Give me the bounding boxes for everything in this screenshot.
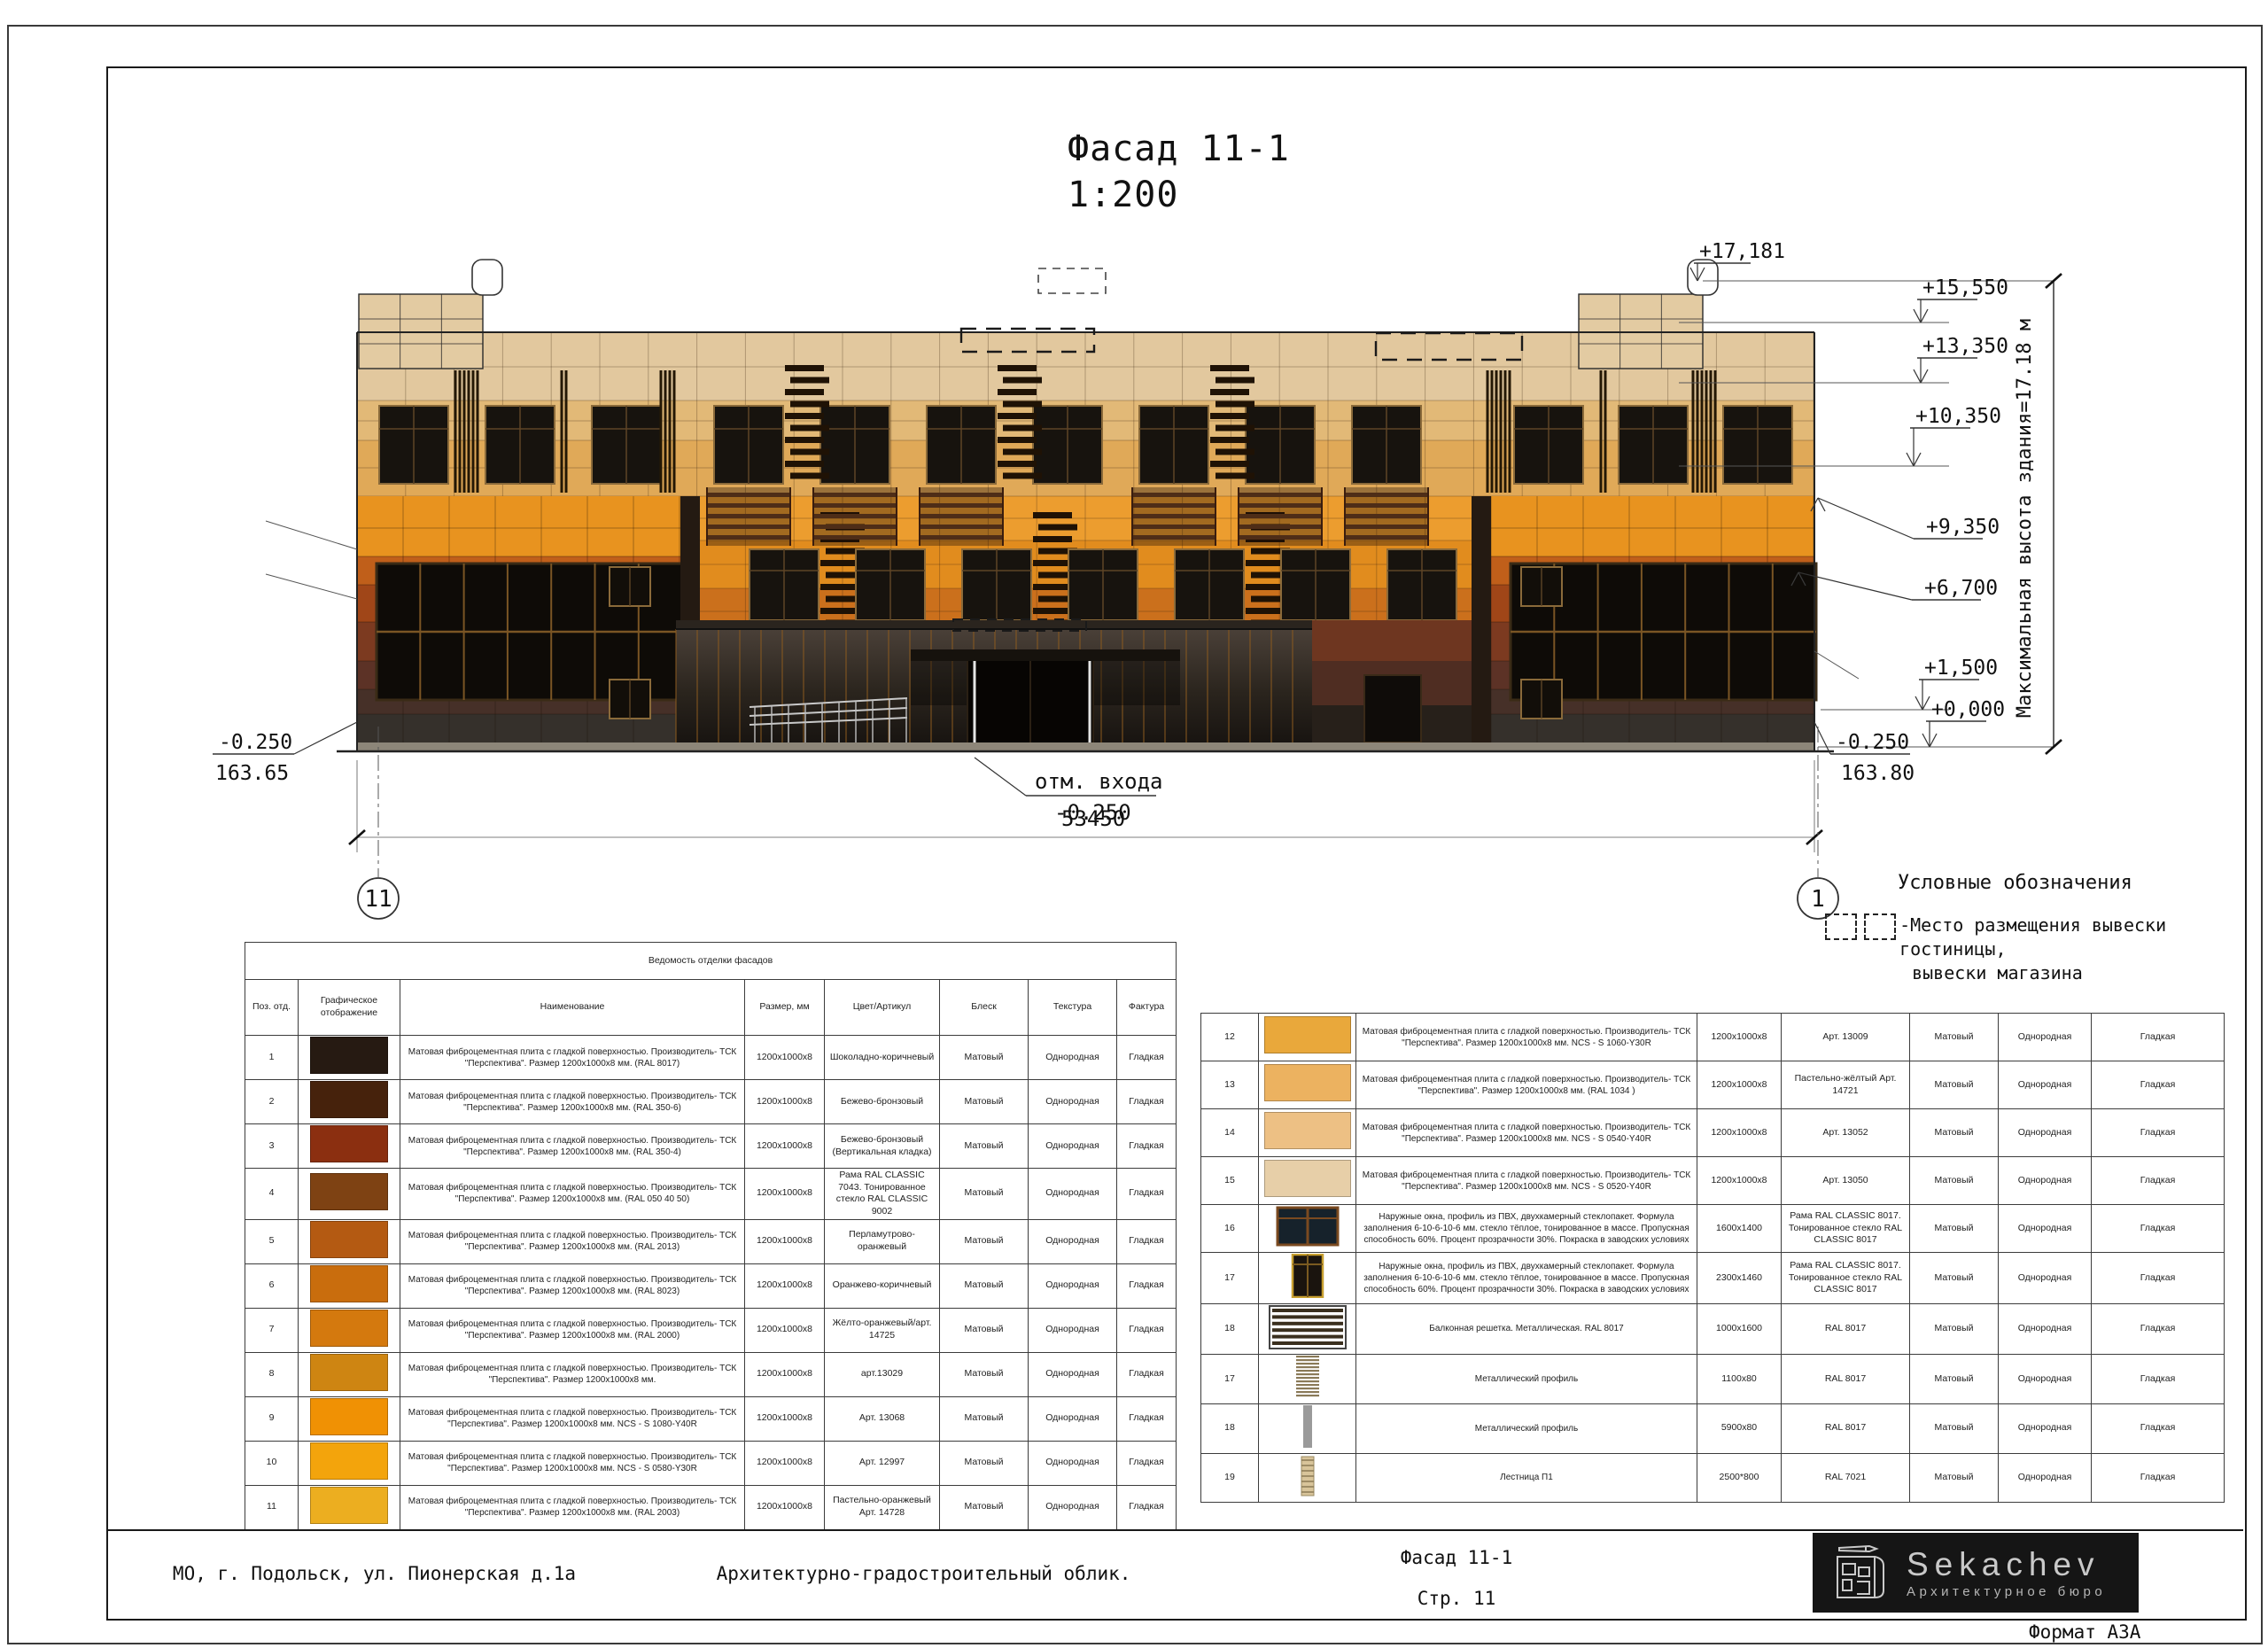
row-texture: Однородная xyxy=(1029,1441,1117,1485)
dim-label: -0.250 xyxy=(219,731,292,754)
column-header: Текстура xyxy=(1029,980,1117,1036)
row-size: 1200х1000х8 xyxy=(745,1308,825,1352)
material-swatch xyxy=(1264,1016,1351,1053)
row-texture: Однородная xyxy=(1029,1308,1117,1352)
table-row: 10Матовая фиброцементная плита с гладкой… xyxy=(245,1441,1177,1485)
row-pos: 6 xyxy=(245,1263,299,1308)
row-texture: Однородная xyxy=(1029,1263,1117,1308)
row-name: Матовая фиброцементная плита с гладкой п… xyxy=(400,1352,745,1396)
row-color: RAL 8017 xyxy=(1782,1355,1910,1404)
row-gloss: Матовый xyxy=(1910,1303,1999,1355)
grille-swatch xyxy=(1269,1305,1347,1349)
table-row: 18Балконная решетка. Металлическая. RAL … xyxy=(1201,1303,2225,1355)
row-name: Матовая фиброцементная плита с гладкой п… xyxy=(400,1080,745,1124)
row-texture: Однородная xyxy=(1999,1061,2092,1109)
table-row: 11Матовая фиброцементная плита с гладкой… xyxy=(245,1485,1177,1529)
row-color: Жёлто-оранжевый/арт. 14725 xyxy=(825,1308,940,1352)
row-swatch-cell xyxy=(1259,1014,1356,1061)
row-size: 1200х1000х8 xyxy=(745,1485,825,1529)
row-color: Рама RAL CLASSIC 7043. Тонированное стек… xyxy=(825,1169,940,1220)
row-surface: Гладкая xyxy=(1117,1352,1177,1396)
finish-schedule-left: Ведомость отделки фасадовПоз. отд.Графич… xyxy=(245,942,1177,1530)
title-block-sheet-name: Фасад 11-1 xyxy=(1205,1547,1708,1568)
dim-label: +17,181 xyxy=(1699,240,1785,263)
row-color: арт.13029 xyxy=(825,1352,940,1396)
row-swatch-cell xyxy=(299,1441,400,1485)
row-name: Матовая фиброцементная плита с гладкой п… xyxy=(1356,1014,1697,1061)
row-pos: 15 xyxy=(1201,1157,1259,1205)
row-surface: Гладкая xyxy=(1117,1396,1177,1441)
row-name: Металлический профиль xyxy=(1356,1403,1697,1453)
row-gloss: Матовый xyxy=(940,1485,1029,1529)
material-swatch xyxy=(310,1442,388,1480)
row-pos: 19 xyxy=(1201,1453,1259,1503)
row-surface: Гладкая xyxy=(1117,1124,1177,1169)
row-pos: 16 xyxy=(1201,1205,1259,1253)
format-label: Формат А3А xyxy=(2029,1621,2140,1643)
row-surface: Гладкая xyxy=(2092,1253,2225,1304)
row-gloss: Матовый xyxy=(940,1124,1029,1169)
row-size: 5900х80 xyxy=(1697,1403,1782,1453)
row-swatch-cell xyxy=(299,1080,400,1124)
row-swatch-cell xyxy=(1259,1205,1356,1253)
row-color: Рама RAL CLASSIC 8017. Тонированное стек… xyxy=(1782,1205,1910,1253)
title-block-stage: Архитектурно-градостроительный облик. xyxy=(642,1563,1205,1584)
row-name: Матовая фиброцементная плита с гладкой п… xyxy=(400,1219,745,1263)
column-header: Фактура xyxy=(1117,980,1177,1036)
row-pos: 4 xyxy=(245,1169,299,1220)
row-surface: Гладкая xyxy=(2092,1303,2225,1355)
row-name: Лестница П1 xyxy=(1356,1453,1697,1503)
row-texture: Однородная xyxy=(1029,1036,1117,1080)
column-header: Цвет/Артикул xyxy=(825,980,940,1036)
row-name: Наружные окна, профиль из ПВХ, двухкамер… xyxy=(1356,1253,1697,1304)
row-swatch-cell xyxy=(299,1352,400,1396)
row-name: Матовая фиброцементная плита с гладкой п… xyxy=(1356,1109,1697,1157)
material-swatch xyxy=(310,1221,388,1258)
row-color: RAL 8017 xyxy=(1782,1303,1910,1355)
table-row: 18Металлический профиль5900х80RAL 8017Ма… xyxy=(1201,1403,2225,1453)
table-row: 17Металлический профиль1100х80RAL 8017Ма… xyxy=(1201,1355,2225,1404)
material-swatch xyxy=(310,1310,388,1347)
row-color: Оранжево-коричневый xyxy=(825,1263,940,1308)
legend: Условные обозначения -Место размещения в… xyxy=(1825,872,2241,985)
finish-schedule-right: 12Матовая фиброцементная плита с гладкой… xyxy=(1200,1013,2225,1503)
row-texture: Однородная xyxy=(1999,1453,2092,1503)
title-block-address: МО, г. Подольск, ул. Пионерская д.1а xyxy=(106,1563,642,1584)
row-surface: Гладкая xyxy=(1117,1036,1177,1080)
dim-label: 1 xyxy=(1811,886,1825,913)
dim-label: 11 xyxy=(364,886,392,913)
row-size: 1200х1000х8 xyxy=(745,1352,825,1396)
row-gloss: Матовый xyxy=(1910,1157,1999,1205)
row-color: RAL 8017 xyxy=(1782,1403,1910,1453)
row-size: 1200х1000х8 xyxy=(745,1263,825,1308)
dim-label: +13,350 xyxy=(1922,335,2008,358)
row-texture: Однородная xyxy=(1999,1157,2092,1205)
row-pos: 2 xyxy=(245,1080,299,1124)
row-size: 1200х1000х8 xyxy=(745,1441,825,1485)
column-header: Поз. отд. xyxy=(245,980,299,1036)
row-pos: 3 xyxy=(245,1124,299,1169)
material-swatch xyxy=(1264,1064,1351,1101)
row-gloss: Матовый xyxy=(940,1308,1029,1352)
dim-label: +6,700 xyxy=(1924,577,1998,600)
row-surface: Гладкая xyxy=(1117,1263,1177,1308)
row-size: 1200х1000х8 xyxy=(745,1219,825,1263)
row-pos: 11 xyxy=(245,1485,299,1529)
table-row: 8Матовая фиброцементная плита с гладкой … xyxy=(245,1352,1177,1396)
logo-brand: Sekachev xyxy=(1907,1547,2106,1582)
material-swatch xyxy=(310,1037,388,1074)
row-gloss: Матовый xyxy=(940,1219,1029,1263)
row-surface: Гладкая xyxy=(1117,1080,1177,1124)
row-swatch-cell xyxy=(1259,1403,1356,1453)
material-swatch xyxy=(310,1354,388,1391)
row-texture: Однородная xyxy=(1999,1205,2092,1253)
row-texture: Однородная xyxy=(1999,1403,2092,1453)
title-block-page: Стр. 11 xyxy=(1205,1588,1708,1609)
row-color: Арт. 13052 xyxy=(1782,1109,1910,1157)
row-color: Перламутрово-оранжевый xyxy=(825,1219,940,1263)
row-pos: 17 xyxy=(1201,1355,1259,1404)
row-surface: Гладкая xyxy=(2092,1403,2225,1453)
row-texture: Однородная xyxy=(1999,1303,2092,1355)
row-swatch-cell xyxy=(1259,1061,1356,1109)
row-texture: Однородная xyxy=(1029,1219,1117,1263)
row-name: Матовая фиброцементная плита с гладкой п… xyxy=(400,1308,745,1352)
row-color: Арт. 13068 xyxy=(825,1396,940,1441)
row-surface: Гладкая xyxy=(2092,1205,2225,1253)
row-name: Наружные окна, профиль из ПВХ, двухкамер… xyxy=(1356,1205,1697,1253)
legend-title: Условные обозначения xyxy=(1898,872,2241,894)
row-gloss: Матовый xyxy=(940,1036,1029,1080)
row-name: Матовая фиброцементная плита с гладкой п… xyxy=(400,1124,745,1169)
legend-item-line2: вывески магазина xyxy=(1912,962,2083,983)
row-surface: Гладкая xyxy=(1117,1441,1177,1485)
row-color: Пастельно-жёлтый Арт. 14721 xyxy=(1782,1061,1910,1109)
row-swatch-cell xyxy=(299,1263,400,1308)
row-size: 2500*800 xyxy=(1697,1453,1782,1503)
row-gloss: Матовый xyxy=(1910,1014,1999,1061)
row-pos: 18 xyxy=(1201,1303,1259,1355)
row-surface: Гладкая xyxy=(2092,1453,2225,1503)
material-swatch xyxy=(310,1398,388,1435)
row-swatch-cell xyxy=(299,1169,400,1220)
row-swatch-cell xyxy=(1259,1109,1356,1157)
row-texture: Однородная xyxy=(1029,1080,1117,1124)
row-swatch-cell xyxy=(299,1485,400,1529)
ladder-swatch xyxy=(1298,1455,1317,1497)
table-row: 5Матовая фиброцементная плита с гладкой … xyxy=(245,1219,1177,1263)
row-pos: 17 xyxy=(1201,1253,1259,1304)
row-color: Рама RAL CLASSIC 8017. Тонированное стек… xyxy=(1782,1253,1910,1304)
row-color: Арт. 12997 xyxy=(825,1441,940,1485)
row-size: 1200х1000х8 xyxy=(745,1396,825,1441)
row-texture: Однородная xyxy=(1029,1485,1117,1529)
material-swatch xyxy=(310,1125,388,1162)
row-name: Балконная решетка. Металлическая. RAL 80… xyxy=(1356,1303,1697,1355)
dim-label: 163.80 xyxy=(1841,762,1915,785)
row-texture: Однородная xyxy=(1029,1352,1117,1396)
column-header: Наименование xyxy=(400,980,745,1036)
row-size: 1200х1000х8 xyxy=(1697,1109,1782,1157)
row-pos: 13 xyxy=(1201,1061,1259,1109)
row-gloss: Матовый xyxy=(940,1263,1029,1308)
row-swatch-cell xyxy=(1259,1157,1356,1205)
table-row: 7Матовая фиброцементная плита с гладкой … xyxy=(245,1308,1177,1352)
row-surface: Гладкая xyxy=(1117,1169,1177,1220)
row-gloss: Матовый xyxy=(1910,1355,1999,1404)
row-pos: 9 xyxy=(245,1396,299,1441)
row-size: 1000х1600 xyxy=(1697,1303,1782,1355)
drawing-sheet: Фасад 11-1 1:200 Максимальная высота зда… xyxy=(0,0,2268,1648)
table-row: 15Матовая фиброцементная плита с гладкой… xyxy=(1201,1157,2225,1205)
row-gloss: Матовый xyxy=(940,1352,1029,1396)
material-swatch xyxy=(1264,1112,1351,1149)
row-swatch-cell xyxy=(1259,1303,1356,1355)
logo-subtitle: Архитектурное бюро xyxy=(1907,1584,2106,1599)
dim-label: +15,550 xyxy=(1922,276,2008,299)
row-texture: Однородная xyxy=(1999,1355,2092,1404)
row-gloss: Матовый xyxy=(1910,1403,1999,1453)
row-pos: 12 xyxy=(1201,1014,1259,1061)
material-swatch xyxy=(310,1487,388,1524)
dim-label: 163.65 xyxy=(215,762,289,785)
row-swatch-cell xyxy=(299,1308,400,1352)
row-pos: 18 xyxy=(1201,1403,1259,1453)
dim-label: отм. входа xyxy=(1035,769,1163,794)
material-swatch xyxy=(310,1081,388,1118)
row-name: Матовая фиброцементная плита с гладкой п… xyxy=(400,1485,745,1529)
profile-swatch xyxy=(1296,1356,1319,1398)
material-swatch xyxy=(310,1173,388,1210)
row-name: Матовая фиброцементная плита с гладкой п… xyxy=(400,1396,745,1441)
dim-label: +1,500 xyxy=(1924,657,1998,680)
row-size: 1200х1000х8 xyxy=(745,1080,825,1124)
row-color: Шоколадно-коричневый xyxy=(825,1036,940,1080)
row-gloss: Матовый xyxy=(1910,1453,1999,1503)
table-row: 4Матовая фиброцементная плита с гладкой … xyxy=(245,1169,1177,1220)
row-size: 1200х1000х8 xyxy=(745,1169,825,1220)
row-swatch-cell xyxy=(299,1396,400,1441)
legend-item-line1: -Место размещения вывески гостиницы, xyxy=(1899,914,2166,960)
blueprint-pencil-icon xyxy=(1829,1541,1894,1605)
dim-label: 53450 xyxy=(1061,806,1125,831)
row-color: Арт. 13050 xyxy=(1782,1157,1910,1205)
row-swatch-cell xyxy=(299,1036,400,1080)
table-row: 6Матовая фиброцементная плита с гладкой … xyxy=(245,1263,1177,1308)
row-surface: Гладкая xyxy=(2092,1109,2225,1157)
row-surface: Гладкая xyxy=(2092,1061,2225,1109)
dim-label: Максимальная высота здания=17.18 м xyxy=(2014,319,2036,718)
row-swatch-cell xyxy=(299,1219,400,1263)
table-row: 17Наружные окна, профиль из ПВХ, двухкам… xyxy=(1201,1253,2225,1304)
row-size: 2300х1460 xyxy=(1697,1253,1782,1304)
schedule-title: Ведомость отделки фасадов xyxy=(245,943,1177,980)
row-gloss: Матовый xyxy=(1910,1109,1999,1157)
row-texture: Однородная xyxy=(1999,1253,2092,1304)
material-swatch xyxy=(310,1265,388,1302)
row-size: 1200х1000х8 xyxy=(745,1036,825,1080)
row-pos: 5 xyxy=(245,1219,299,1263)
row-surface: Гладкая xyxy=(1117,1219,1177,1263)
row-gloss: Матовый xyxy=(940,1080,1029,1124)
architect-logo: Sekachev Архитектурное бюро xyxy=(1813,1533,2139,1613)
row-name: Матовая фиброцементная плита с гладкой п… xyxy=(1356,1061,1697,1109)
row-gloss: Матовый xyxy=(940,1396,1029,1441)
row-swatch-cell xyxy=(1259,1253,1356,1304)
row-name: Матовая фиброцементная плита с гладкой п… xyxy=(400,1169,745,1220)
row-size: 1200х1000х8 xyxy=(1697,1014,1782,1061)
row-size: 1600х1400 xyxy=(1697,1205,1782,1253)
row-pos: 14 xyxy=(1201,1109,1259,1157)
row-name: Матовая фиброцементная плита с гладкой п… xyxy=(400,1263,745,1308)
row-color: Пастельно-оранжевый Арт. 14728 xyxy=(825,1485,940,1529)
window-tall-swatch xyxy=(1289,1254,1326,1298)
row-name: Матовая фиброцементная плита с гладкой п… xyxy=(1356,1157,1697,1205)
row-name: Матовая фиброцементная плита с гладкой п… xyxy=(400,1441,745,1485)
row-gloss: Матовый xyxy=(940,1441,1029,1485)
table-row: 2Матовая фиброцементная плита с гладкой … xyxy=(245,1080,1177,1124)
row-color: Арт. 13009 xyxy=(1782,1014,1910,1061)
row-texture: Однородная xyxy=(1029,1169,1117,1220)
row-size: 1100х80 xyxy=(1697,1355,1782,1404)
table-row: 19Лестница П12500*800RAL 7021МатовыйОдно… xyxy=(1201,1453,2225,1503)
table-row: 16Наружные окна, профиль из ПВХ, двухкам… xyxy=(1201,1205,2225,1253)
material-swatch xyxy=(1264,1160,1351,1197)
row-surface: Гладкая xyxy=(1117,1308,1177,1352)
row-surface: Гладкая xyxy=(2092,1014,2225,1061)
row-surface: Гладкая xyxy=(2092,1355,2225,1404)
row-name: Матовая фиброцементная плита с гладкой п… xyxy=(400,1036,745,1080)
row-swatch-cell xyxy=(299,1124,400,1169)
table-row: 3Матовая фиброцементная плита с гладкой … xyxy=(245,1124,1177,1169)
table-header-row: Поз. отд.Графическое отображениеНаименов… xyxy=(245,980,1177,1036)
row-texture: Однородная xyxy=(1029,1396,1117,1441)
row-texture: Однородная xyxy=(1999,1014,2092,1061)
table-row: 9Матовая фиброцементная плита с гладкой … xyxy=(245,1396,1177,1441)
row-size: 1200х1000х8 xyxy=(1697,1157,1782,1205)
row-color: RAL 7021 xyxy=(1782,1453,1910,1503)
row-texture: Однородная xyxy=(1029,1124,1117,1169)
row-texture: Однородная xyxy=(1999,1109,2092,1157)
column-header: Размер, мм xyxy=(745,980,825,1036)
row-size: 1200х1000х8 xyxy=(745,1124,825,1169)
sign-place-icon xyxy=(1825,913,1857,940)
row-pos: 10 xyxy=(245,1441,299,1485)
dim-label: +0,000 xyxy=(1931,698,2005,721)
row-color: Бежево-бронзовый (Вертикальная кладка) xyxy=(825,1124,940,1169)
table-row: 13Матовая фиброцементная плита с гладкой… xyxy=(1201,1061,2225,1109)
table-row: 1Матовая фиброцементная плита с гладкой … xyxy=(245,1036,1177,1080)
row-gloss: Матовый xyxy=(1910,1205,1999,1253)
row-swatch-cell xyxy=(1259,1453,1356,1503)
bar-swatch xyxy=(1301,1405,1314,1448)
window-swatch xyxy=(1276,1206,1340,1247)
column-header: Графическое отображение xyxy=(299,980,400,1036)
row-pos: 8 xyxy=(245,1352,299,1396)
dim-label: -0.250 xyxy=(1836,731,1909,754)
row-gloss: Матовый xyxy=(1910,1061,1999,1109)
row-pos: 1 xyxy=(245,1036,299,1080)
sign-place-icon xyxy=(1864,913,1896,940)
row-swatch-cell xyxy=(1259,1355,1356,1404)
row-color: Бежево-бронзовый xyxy=(825,1080,940,1124)
row-name: Металлический профиль xyxy=(1356,1355,1697,1404)
row-surface: Гладкая xyxy=(2092,1157,2225,1205)
row-size: 1200х1000х8 xyxy=(1697,1061,1782,1109)
table-row: 14Матовая фиброцементная плита с гладкой… xyxy=(1201,1109,2225,1157)
dim-label: +10,350 xyxy=(1915,405,2001,428)
column-header: Блеск xyxy=(940,980,1029,1036)
table-row: 12Матовая фиброцементная плита с гладкой… xyxy=(1201,1014,2225,1061)
row-surface: Гладкая xyxy=(1117,1485,1177,1529)
row-gloss: Матовый xyxy=(940,1169,1029,1220)
row-pos: 7 xyxy=(245,1308,299,1352)
row-gloss: Матовый xyxy=(1910,1253,1999,1304)
dim-label: +9,350 xyxy=(1926,516,2000,539)
